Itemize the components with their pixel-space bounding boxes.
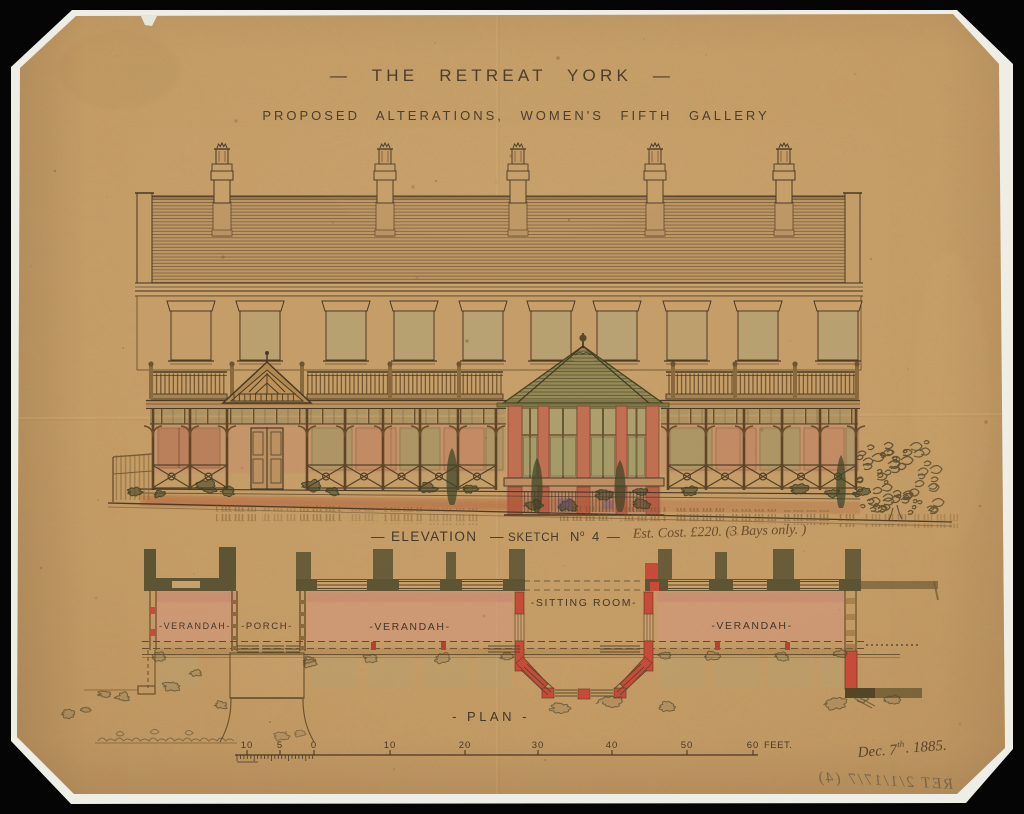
- svg-text:-SITTING ROOM-: -SITTING ROOM-: [531, 597, 637, 609]
- svg-text:60: 60: [747, 740, 760, 751]
- svg-text:o: o: [580, 529, 585, 538]
- svg-text:5: 5: [277, 740, 283, 751]
- svg-text:—: —: [371, 529, 385, 544]
- svg-text:50: 50: [681, 740, 694, 751]
- svg-text:Dec. 7: Dec. 7: [856, 742, 899, 761]
- svg-text:th: th: [897, 739, 905, 749]
- svg-text:40: 40: [606, 740, 619, 751]
- svg-text:SKETCH: SKETCH: [508, 532, 559, 544]
- svg-text:. 1885.: . 1885.: [905, 738, 947, 757]
- svg-text:-VERANDAH-: -VERANDAH-: [369, 621, 450, 633]
- svg-text:— THE RETREAT YORK —: — THE RETREAT YORK —: [330, 66, 674, 85]
- svg-text:—: —: [490, 529, 504, 544]
- svg-text:10: 10: [384, 740, 397, 751]
- svg-text:4 —: 4 —: [592, 529, 622, 544]
- svg-text:FEET.: FEET.: [764, 740, 792, 751]
- svg-text:- PLAN -: - PLAN -: [452, 709, 530, 724]
- svg-text:30: 30: [532, 740, 545, 751]
- svg-text:-PORCH-: -PORCH-: [241, 621, 293, 632]
- svg-text:-VERANDAH-: -VERANDAH-: [711, 620, 792, 632]
- svg-text:-VERANDAH-: -VERANDAH-: [159, 621, 231, 631]
- svg-text:0: 0: [311, 740, 317, 751]
- svg-text:ELEVATION: ELEVATION: [391, 529, 477, 544]
- svg-text:10: 10: [241, 740, 254, 751]
